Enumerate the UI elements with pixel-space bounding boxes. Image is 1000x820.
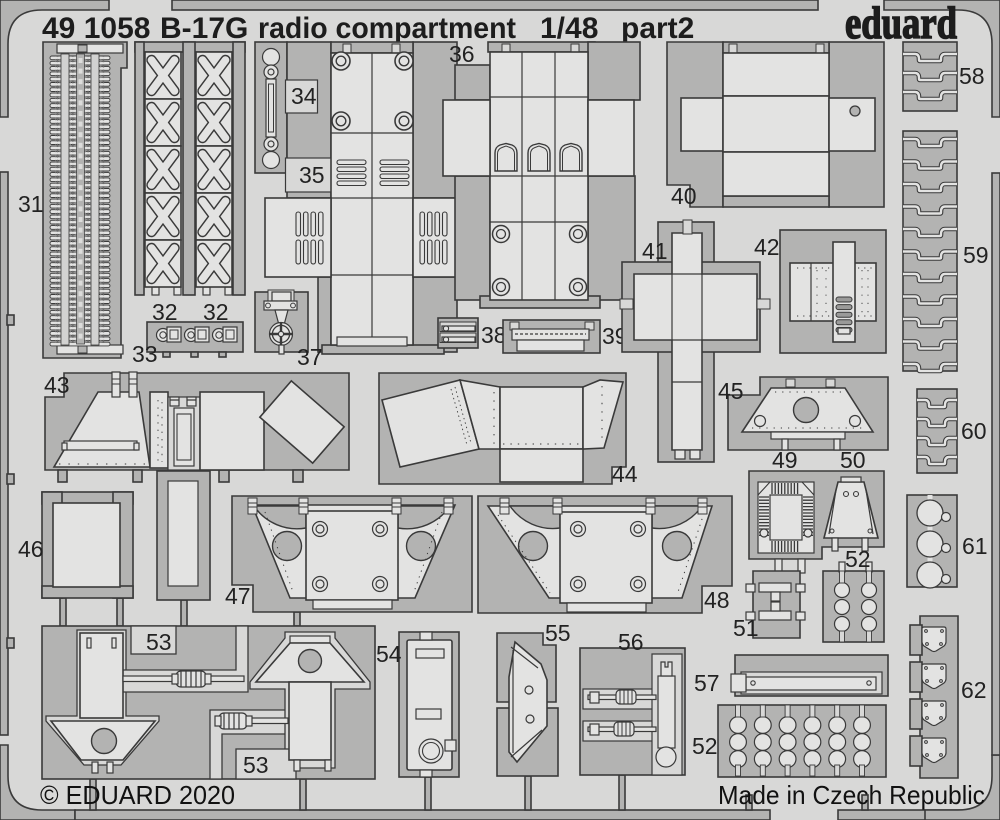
svg-text:52: 52: [692, 733, 718, 759]
svg-text:B-17G: B-17G: [160, 12, 248, 45]
svg-text:49: 49: [772, 447, 798, 473]
svg-text:42: 42: [754, 234, 780, 260]
svg-text:43: 43: [44, 372, 70, 398]
svg-text:part2: part2: [621, 12, 694, 45]
svg-text:32: 32: [152, 299, 178, 325]
svg-text:44: 44: [612, 461, 638, 487]
svg-text:56: 56: [618, 629, 644, 655]
svg-text:45: 45: [718, 378, 744, 404]
svg-text:© EDUARD 2020: © EDUARD 2020: [40, 780, 235, 810]
svg-text:1/48: 1/48: [540, 12, 598, 45]
svg-text:36: 36: [449, 41, 475, 67]
svg-text:32: 32: [203, 299, 229, 325]
svg-text:47: 47: [225, 583, 251, 609]
svg-text:46: 46: [18, 536, 44, 562]
svg-text:eduard: eduard: [845, 0, 957, 48]
svg-text:61: 61: [962, 533, 988, 559]
svg-text:55: 55: [545, 620, 571, 646]
svg-text:51: 51: [733, 615, 759, 641]
svg-text:Made in Czech Republic: Made in Czech Republic: [718, 780, 985, 810]
svg-text:41: 41: [642, 238, 668, 264]
svg-text:50: 50: [840, 447, 866, 473]
svg-text:35: 35: [299, 162, 325, 188]
svg-text:40: 40: [671, 183, 697, 209]
svg-text:59: 59: [963, 242, 989, 268]
svg-text:57: 57: [694, 670, 720, 696]
svg-text:49 1058: 49 1058: [42, 12, 150, 45]
svg-text:31: 31: [18, 191, 44, 217]
svg-text:60: 60: [961, 418, 987, 444]
svg-text:52: 52: [845, 546, 871, 572]
svg-text:34: 34: [291, 83, 317, 109]
svg-text:33: 33: [132, 341, 158, 367]
svg-text:54: 54: [376, 641, 402, 667]
svg-text:48: 48: [704, 587, 730, 613]
svg-text:58: 58: [959, 63, 985, 89]
svg-text:radio compartment: radio compartment: [258, 12, 516, 45]
svg-text:53: 53: [243, 752, 269, 778]
svg-text:37: 37: [297, 344, 323, 370]
svg-text:62: 62: [961, 677, 987, 703]
svg-text:53: 53: [146, 629, 172, 655]
